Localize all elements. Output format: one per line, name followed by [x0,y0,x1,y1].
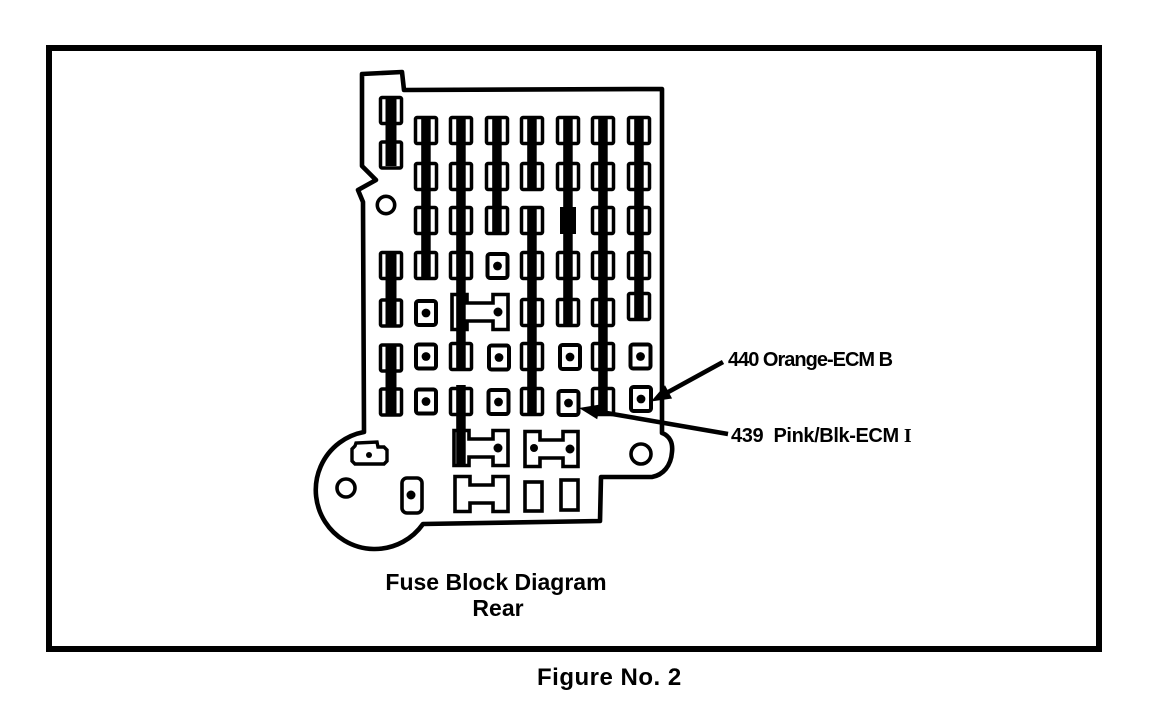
svg-text:Figure No. 2: Figure No. 2 [537,664,682,691]
svg-text:440 Orange-ECM B: 440 Orange-ECM B [728,349,893,371]
svg-text:Fuse Block Diagram: Fuse Block Diagram [385,569,606,595]
svg-text:Rear: Rear [472,595,523,621]
svg-text:439 Pink/Blk-ECM I: 439 Pink/Blk-ECM I [731,425,912,447]
